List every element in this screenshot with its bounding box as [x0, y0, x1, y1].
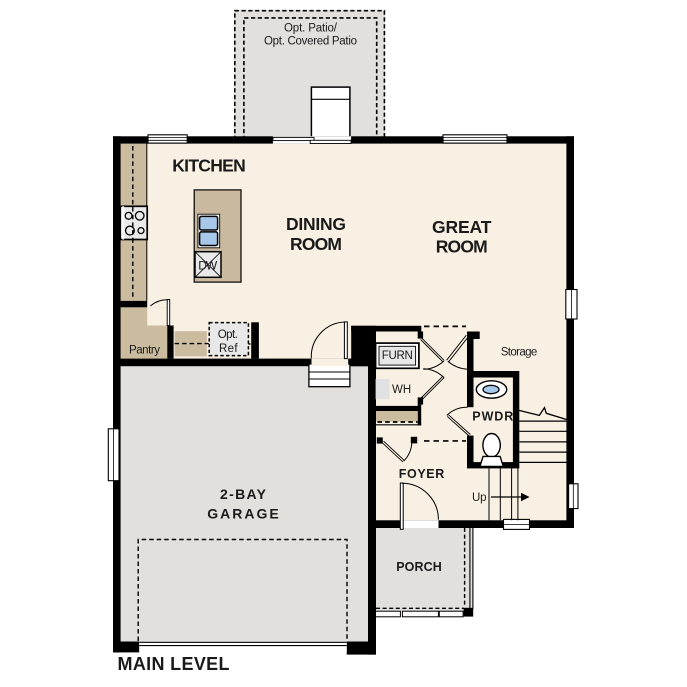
svg-text:2-BAY: 2-BAY — [220, 486, 267, 502]
svg-text:Opt. Patio/: Opt. Patio/ — [284, 23, 338, 35]
svg-text:Ref: Ref — [219, 343, 238, 355]
svg-text:PWDR: PWDR — [472, 410, 513, 424]
svg-text:FOYER: FOYER — [399, 467, 445, 481]
svg-text:DW: DW — [198, 259, 218, 273]
svg-text:KITCHEN: KITCHEN — [172, 155, 246, 175]
svg-text:Up: Up — [472, 492, 487, 504]
svg-text:ROOM: ROOM — [290, 234, 342, 254]
svg-text:MAIN LEVEL: MAIN LEVEL — [118, 654, 230, 674]
svg-text:Opt. Covered Patio: Opt. Covered Patio — [264, 36, 357, 48]
svg-text:GREAT: GREAT — [432, 217, 492, 237]
svg-text:Opt.: Opt. — [218, 329, 238, 341]
svg-text:PORCH: PORCH — [396, 560, 442, 574]
svg-text:Storage: Storage — [501, 347, 538, 359]
svg-text:WH: WH — [392, 384, 411, 396]
svg-text:FURN: FURN — [382, 350, 413, 362]
svg-text:DINING: DINING — [286, 214, 346, 234]
svg-text:Pantry: Pantry — [129, 345, 160, 357]
svg-text:ROOM: ROOM — [436, 237, 488, 257]
